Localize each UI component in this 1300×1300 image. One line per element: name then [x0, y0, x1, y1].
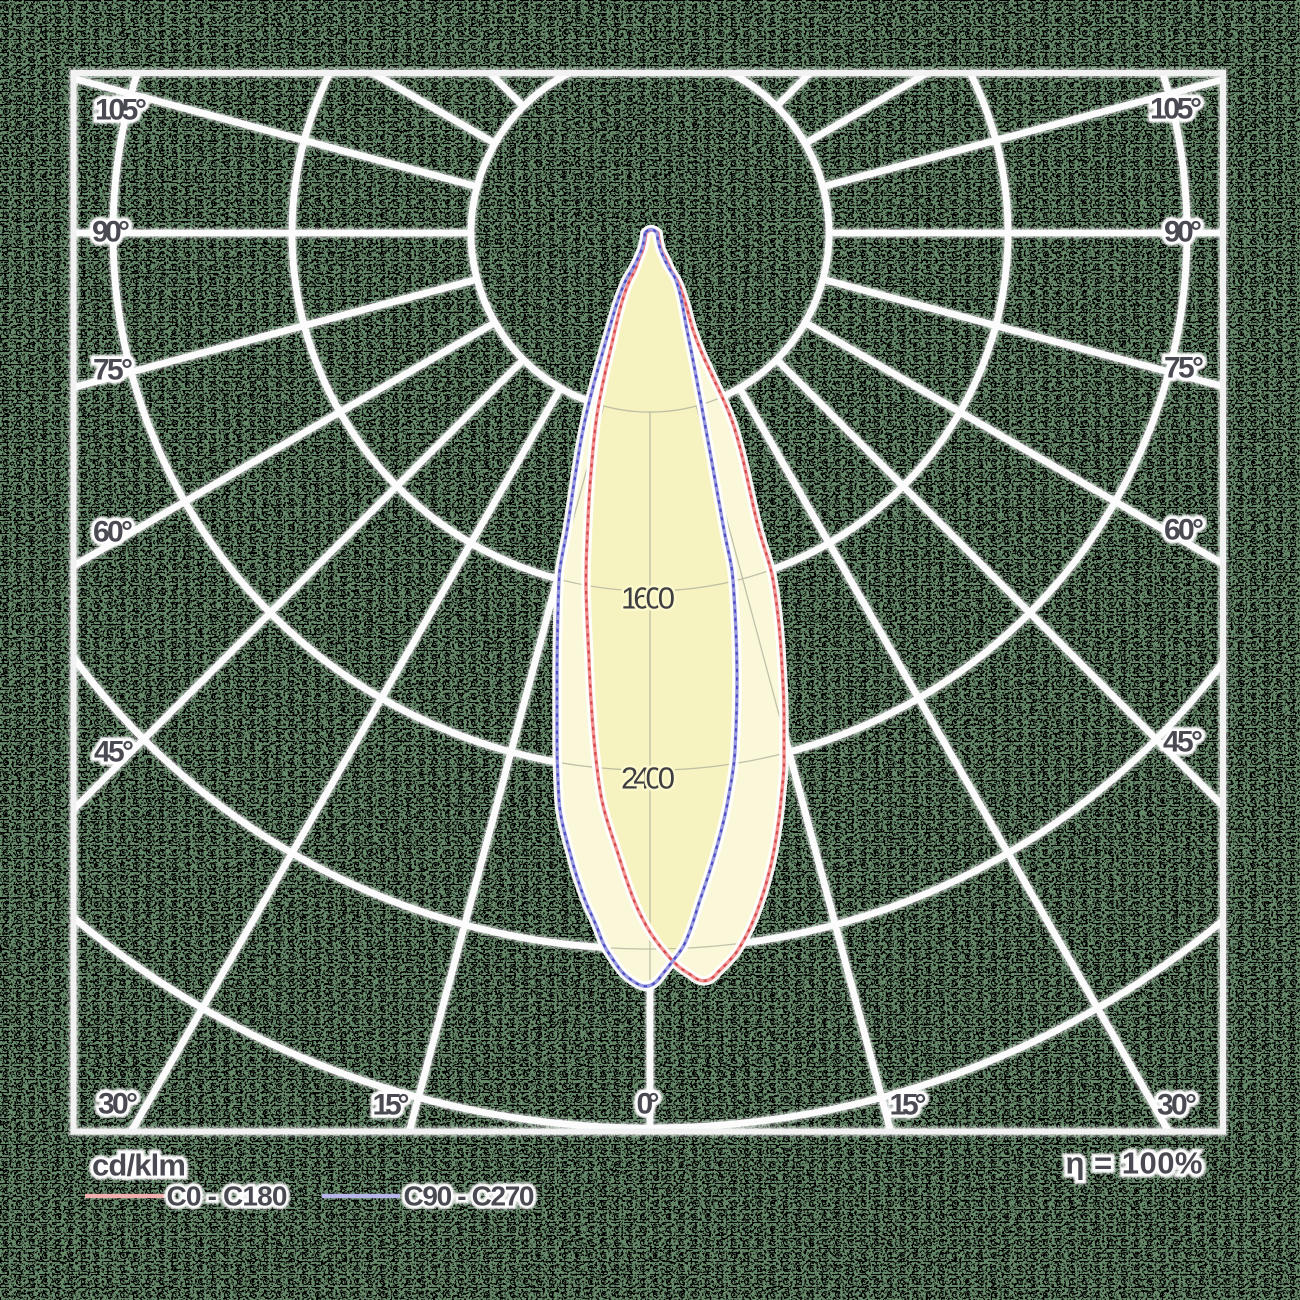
svg-text:1600: 1600	[621, 581, 675, 616]
svg-text:105°: 105°	[1150, 93, 1202, 126]
svg-text:η = 100%: η = 100%	[1066, 1146, 1203, 1181]
svg-text:0°: 0°	[637, 1088, 660, 1121]
svg-text:30°: 30°	[98, 1088, 138, 1121]
svg-text:2400: 2400	[621, 761, 675, 796]
svg-text:90°: 90°	[92, 216, 130, 249]
svg-text:15°: 15°	[890, 1089, 927, 1122]
svg-text:60°: 60°	[93, 516, 133, 549]
svg-text:45°: 45°	[94, 736, 134, 769]
svg-text:cd/klm: cd/klm	[92, 1148, 186, 1183]
svg-text:75°: 75°	[1164, 352, 1204, 385]
svg-text:15°: 15°	[373, 1089, 410, 1122]
svg-text:45°: 45°	[1163, 726, 1203, 759]
svg-text:C0 - C180: C0 - C180	[167, 1181, 288, 1212]
svg-text:90°: 90°	[1164, 216, 1202, 249]
svg-text:C90 - C270: C90 - C270	[404, 1181, 535, 1212]
svg-text:30°: 30°	[1157, 1089, 1197, 1122]
svg-text:75°: 75°	[93, 354, 133, 387]
svg-text:60°: 60°	[1164, 514, 1204, 547]
svg-text:105°: 105°	[95, 94, 147, 127]
